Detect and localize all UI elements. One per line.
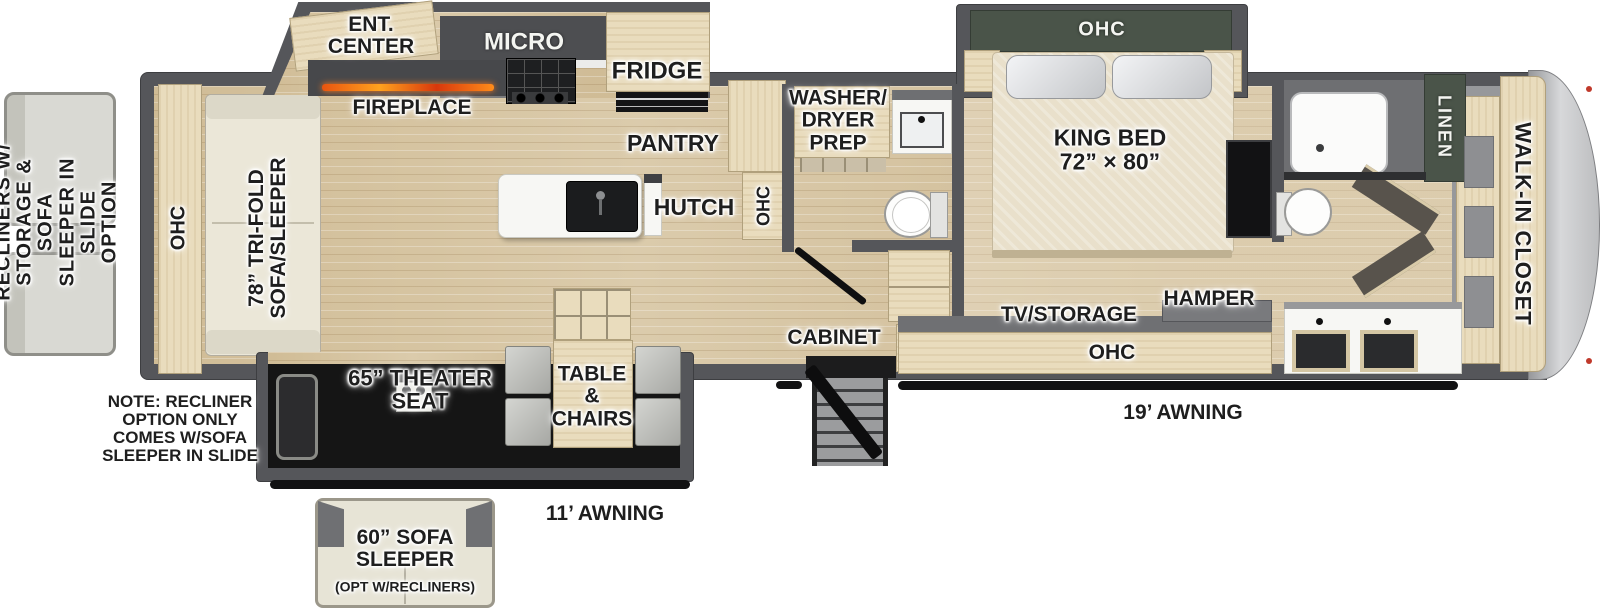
- awning-11-label: 11’ AWNING: [546, 503, 664, 525]
- island-sink: [566, 181, 638, 232]
- dinette-hutch: [553, 288, 631, 340]
- closet-shelf-opening-3: [1464, 276, 1494, 328]
- awning-rail-11ft: [270, 480, 690, 489]
- midbath-toilet-tank: [930, 192, 948, 238]
- king-bed-label: KING BED 72” × 80”: [1054, 126, 1166, 175]
- ent-center-label: ENT. CENTER: [328, 14, 414, 59]
- shower-drain: [1316, 144, 1324, 152]
- island-faucet-neck: [599, 199, 602, 215]
- bedroom-ohc-label: OHC: [1078, 19, 1125, 40]
- bedroom-step-line: [889, 286, 949, 288]
- closet-shelf-opening-2: [1464, 206, 1494, 258]
- vanity-backsplash: [1284, 302, 1462, 309]
- trifold-sofa-arm-top: [206, 95, 320, 119]
- bed-pillow-right: [1112, 55, 1212, 99]
- dinette-chair-2: [505, 398, 551, 446]
- midbath-wall-right: [952, 84, 964, 324]
- fireplace-label: FIREPLACE: [352, 97, 471, 119]
- sofa-sleeper-option-label: 60” SOFA SLEEPER: [356, 527, 454, 572]
- sofa-sleeper-option-sublabel: (OPT W/RECLINERS): [335, 580, 475, 595]
- shower-threshold: [1284, 172, 1426, 180]
- micro-label: MICRO: [484, 29, 564, 54]
- dinette-chair-4: [635, 398, 681, 446]
- midbath-backsplash: [892, 90, 952, 100]
- rear-ohc-label: OHC: [168, 206, 189, 250]
- king-bed-foot-board: [992, 250, 1232, 258]
- washer-dryer-label: WASHER/ DRYER PREP: [789, 88, 887, 155]
- awning-bracket-19ft: [776, 381, 802, 389]
- fireplace-embers: [322, 84, 494, 91]
- vanity-faucet-right: [1384, 318, 1391, 325]
- vanity-faucet-left: [1316, 318, 1323, 325]
- pantry-cabinet: [728, 80, 786, 172]
- hutch-cabinet-top: [644, 174, 662, 183]
- bed-pillow-left: [1006, 55, 1106, 99]
- bedroom-tv-panel: [1226, 140, 1272, 238]
- tv-storage-label: TV/STORAGE: [1001, 304, 1137, 326]
- closet-shelf-opening-1: [1464, 136, 1494, 188]
- dinette-chair-1: [505, 346, 551, 394]
- pantry-label: PANTRY: [627, 131, 719, 155]
- kitchen-ohc-label: OHC: [754, 186, 773, 226]
- rearbath-toilet-bowl: [1284, 188, 1332, 236]
- midbath-faucet: [918, 116, 925, 123]
- fridge-lower-shelf: [616, 92, 708, 112]
- marker-light-bottom: [1586, 358, 1592, 364]
- marker-light-top: [1586, 86, 1592, 92]
- fridge-label: FRIDGE: [612, 58, 703, 83]
- vanity-sink-left: [1292, 330, 1350, 372]
- range-burners: [512, 92, 568, 104]
- rv-floorplan: RECLINERS W/ STORAGE & SOFA SLEEPER IN S…: [0, 0, 1600, 614]
- hamper-label: HAMPER: [1163, 288, 1254, 310]
- awning-rail-19ft: [898, 381, 1458, 390]
- bedroom-ohc-bottom-label: OHC: [1089, 342, 1136, 364]
- shower-pan: [1290, 92, 1388, 174]
- hutch-label: HUTCH: [654, 195, 735, 219]
- theater-seat-label: 65” THEATER SEAT: [348, 367, 492, 414]
- cabinet-label: CABINET: [787, 327, 880, 349]
- walk-in-closet-label: WALK-IN CLOSET: [1511, 94, 1534, 354]
- trifold-sofa-arm-bottom: [206, 330, 320, 354]
- recliner-note: NOTE: RECLINER OPTION ONLY COMES W/SOFA …: [50, 393, 310, 465]
- washer-closet-drawers: [800, 158, 886, 172]
- midbath-toilet-seat: [892, 197, 930, 233]
- table-chairs-label: TABLE & CHAIRS: [552, 364, 633, 431]
- awning-19-label: 19’ AWNING: [1123, 402, 1242, 424]
- bedroom-ohc-lower-band: [898, 332, 1272, 374]
- linen-label: LINEN: [1434, 95, 1453, 159]
- recliner-option-label: RECLINERS W/ STORAGE & SOFA SLEEPER IN S…: [0, 127, 121, 317]
- vanity-sink-right: [1360, 330, 1418, 372]
- trifold-sofa-label: 78” TRI-FOLD SOFA/SLEEPER: [246, 153, 291, 323]
- dinette-chair-3: [635, 346, 681, 394]
